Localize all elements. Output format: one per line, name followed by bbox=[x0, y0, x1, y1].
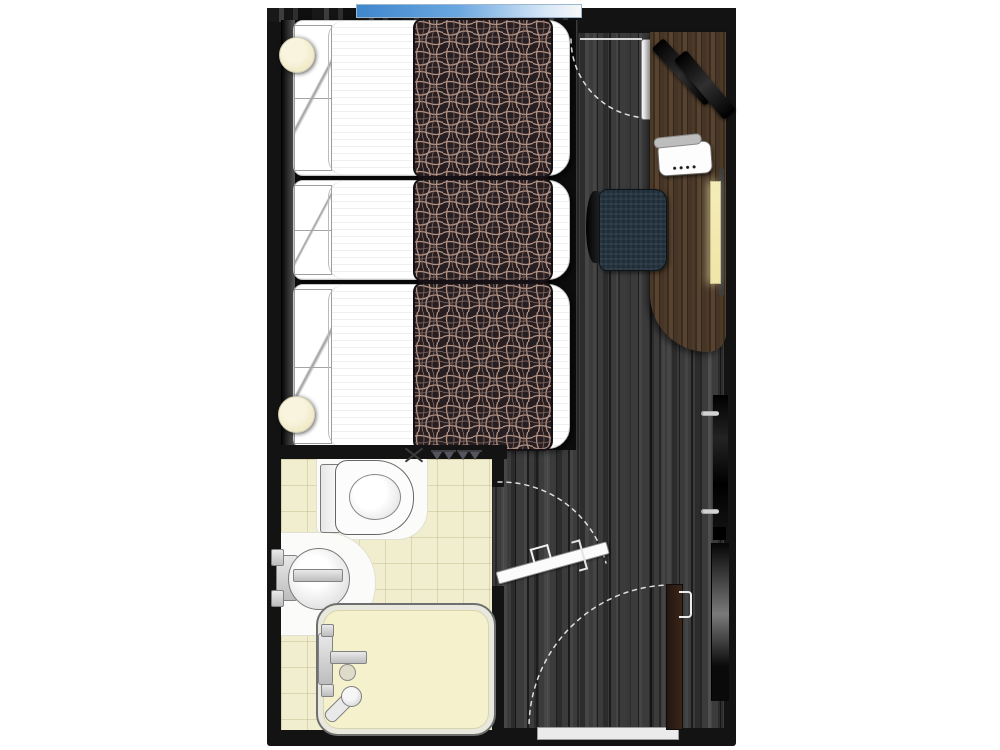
tub-knob bbox=[321, 624, 334, 637]
wardrobe-handle bbox=[703, 412, 719, 415]
basin-spout bbox=[293, 569, 343, 582]
phone-keys bbox=[671, 164, 698, 171]
bedside-lamp-bottom bbox=[278, 396, 315, 433]
tub-spout bbox=[330, 651, 367, 664]
towel-rack-icon bbox=[431, 450, 456, 465]
entrance-door-handle bbox=[679, 591, 692, 618]
bed-runner bbox=[413, 178, 553, 282]
full-length-mirror bbox=[711, 543, 729, 701]
basin-knob bbox=[271, 590, 284, 607]
bedside-lamp-top bbox=[279, 37, 315, 73]
floor-plan bbox=[0, 0, 1000, 750]
toilet-bowl-inner bbox=[349, 474, 401, 520]
wardrobe bbox=[713, 395, 728, 539]
wardrobe-handle bbox=[703, 510, 719, 513]
tub-drain bbox=[339, 664, 356, 681]
bed-runner bbox=[413, 282, 553, 451]
basin-knob bbox=[271, 549, 284, 566]
window bbox=[356, 4, 582, 18]
shower-head bbox=[341, 686, 362, 707]
toilet bbox=[335, 460, 414, 535]
pillow bbox=[294, 185, 332, 275]
desk-chair bbox=[599, 189, 667, 271]
bed-runner bbox=[413, 18, 553, 178]
entrance-door-swing-arc bbox=[524, 578, 680, 734]
bed-3 bbox=[293, 284, 570, 449]
bed-2 bbox=[293, 180, 570, 280]
entrance-threshold bbox=[537, 727, 679, 740]
tub-knob bbox=[321, 684, 334, 697]
desk-lamp bbox=[710, 181, 721, 284]
bed-1 bbox=[293, 20, 570, 176]
towel-rack-icon bbox=[457, 450, 482, 465]
mirror-bracket bbox=[713, 527, 726, 540]
telephone bbox=[657, 140, 713, 177]
